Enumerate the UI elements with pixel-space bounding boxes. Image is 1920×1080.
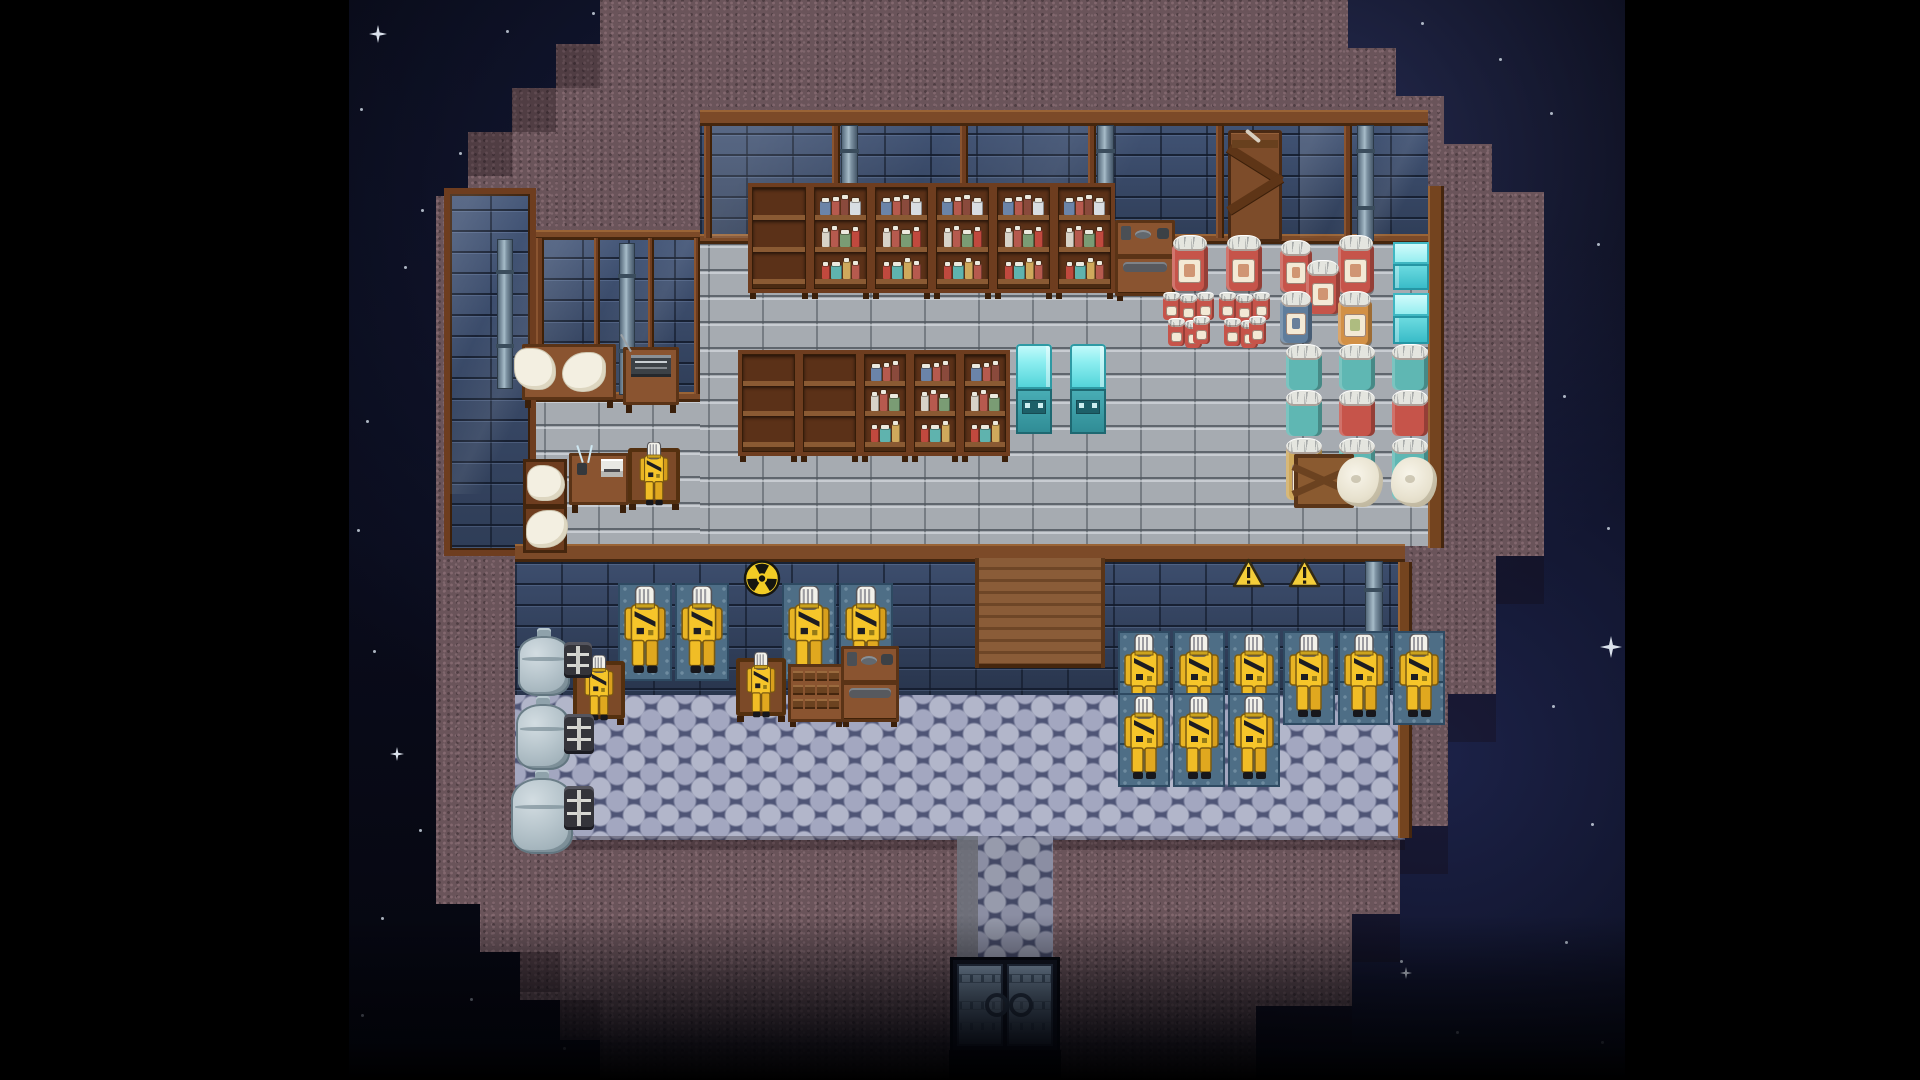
shelf-tier — [998, 220, 1049, 252]
star — [1550, 112, 1553, 115]
shelf-leg — [802, 293, 808, 299]
small-can — [1193, 316, 1210, 344]
item-cap — [981, 390, 987, 394]
table-with-maps[interactable] — [522, 344, 616, 400]
item-cap — [1077, 197, 1083, 201]
shelf-item — [1023, 233, 1034, 247]
label-glyph — [1292, 267, 1301, 278]
kitchen-counter[interactable] — [1115, 220, 1175, 296]
shelf-item — [1003, 201, 1014, 215]
shelf-item — [942, 201, 953, 215]
pipe-bracket — [496, 270, 514, 274]
item-cap — [944, 198, 952, 202]
door-plank-diagonal — [1226, 174, 1283, 214]
can-lid — [1173, 235, 1207, 251]
rock-shadow-tile — [556, 44, 600, 88]
shelf-item — [971, 395, 979, 411]
item-cap — [972, 425, 978, 429]
pipe-bracket — [496, 344, 514, 348]
drawer — [829, 685, 839, 695]
star — [1499, 58, 1502, 61]
pan-tool — [861, 656, 877, 665]
hazmat-suit-rack[interactable] — [1397, 634, 1441, 718]
shelf-tier — [804, 355, 855, 386]
can-lid — [1339, 291, 1371, 307]
cabinet-leg — [836, 722, 842, 727]
can-lid — [1339, 390, 1375, 406]
item-cap — [905, 258, 911, 262]
drawer — [793, 699, 803, 709]
item-cap — [853, 261, 859, 265]
drawer — [805, 685, 815, 695]
hazmat-suit-rack[interactable] — [1342, 634, 1386, 718]
shelf-leg — [924, 293, 930, 299]
jug-ring — [522, 657, 566, 661]
shelf-leg — [952, 456, 958, 462]
shelf-tier — [815, 252, 866, 284]
can-lid — [1286, 438, 1322, 454]
item-cap — [852, 198, 860, 202]
hazmat-suit-stand[interactable] — [628, 448, 680, 510]
shelf-item — [892, 424, 900, 442]
grinder-tool — [1121, 226, 1131, 240]
grinder-tool — [847, 652, 857, 666]
shelf-tier — [965, 416, 1005, 447]
shelf-item — [1024, 198, 1032, 215]
canister-stripe — [576, 646, 580, 674]
shelf-item — [1066, 231, 1074, 247]
hazmat-suit-stand[interactable] — [736, 658, 786, 722]
shelf-item — [971, 428, 979, 442]
can-label — [1286, 313, 1306, 335]
hazmat-suit — [745, 652, 777, 718]
radio-line — [635, 367, 667, 369]
item-cap — [884, 228, 890, 232]
shelf-item — [989, 397, 1000, 411]
shelf-item — [1084, 233, 1095, 247]
pantry-shelf[interactable] — [860, 350, 910, 456]
shelf-tier — [915, 386, 955, 417]
hazmat-suit-rack[interactable] — [679, 586, 725, 674]
shelf-tier — [965, 386, 1005, 417]
can-label — [1344, 259, 1367, 283]
item-cap — [1067, 228, 1073, 232]
large-supply-can[interactable] — [1338, 235, 1374, 293]
large-supply-can-orange[interactable] — [1338, 291, 1372, 345]
shelf-item — [831, 229, 839, 247]
shelf-item — [942, 364, 950, 381]
drawer — [817, 671, 827, 681]
hazmat-suit-rack[interactable] — [1122, 696, 1166, 780]
shelf-item — [974, 264, 982, 279]
shelf-leg — [1046, 293, 1052, 299]
canister[interactable] — [564, 714, 594, 754]
map-cloth — [562, 352, 606, 392]
hazmat-suit-rack[interactable] — [1232, 696, 1276, 780]
kettle-tool — [881, 654, 893, 665]
jug-body — [518, 636, 570, 696]
water-jug[interactable] — [518, 628, 570, 696]
shelf-tier — [998, 252, 1049, 284]
item-cap — [822, 198, 830, 202]
item-cap — [1015, 262, 1023, 266]
star — [357, 529, 360, 532]
window-sheen-west — [450, 194, 530, 494]
label-glyph — [1238, 264, 1248, 276]
shelf-item — [892, 229, 900, 247]
shelf-tier — [998, 188, 1049, 220]
shelf-item — [883, 231, 891, 247]
item-cap — [1086, 195, 1092, 199]
shelf-tier — [753, 220, 805, 252]
lab-desk[interactable] — [569, 453, 629, 505]
small-can — [1168, 318, 1185, 346]
boarded-door[interactable] — [1228, 130, 1282, 242]
shelf-item — [992, 424, 1000, 442]
shelf-item — [1014, 265, 1025, 279]
stacked-can — [1286, 390, 1322, 436]
tool-cabinet[interactable] — [841, 646, 899, 722]
small-can-cluster[interactable] — [1219, 292, 1271, 350]
shelf-item — [841, 198, 849, 215]
cotton-bale[interactable] — [1337, 457, 1383, 507]
small-can — [1163, 292, 1180, 320]
rock-shadow-tile — [512, 88, 556, 132]
cabinet-shelf-board — [1118, 254, 1172, 259]
small-can — [1249, 316, 1266, 344]
shelf-item — [871, 367, 882, 381]
item-cap — [940, 394, 948, 398]
label-glyph — [1350, 319, 1360, 331]
can-lid — [1392, 390, 1428, 406]
item-cap — [990, 394, 998, 398]
stacked-can — [1339, 344, 1375, 390]
shelf-tier — [743, 386, 794, 417]
star — [1597, 243, 1600, 246]
shelf-item — [871, 395, 879, 411]
large-supply-can[interactable] — [1226, 235, 1262, 291]
wall-mullion — [704, 126, 712, 238]
shelf-leg — [985, 293, 991, 299]
pantry-shelf[interactable] — [960, 350, 1010, 456]
item-cap — [1097, 227, 1103, 231]
cotton-bale[interactable] — [1391, 457, 1437, 507]
drawer — [805, 699, 815, 709]
small-can — [1219, 292, 1236, 320]
item-cap — [890, 394, 898, 398]
letterbox-right — [1625, 0, 1920, 1080]
item-cap — [966, 258, 972, 262]
item-cap — [993, 361, 999, 365]
shelf-item — [933, 366, 941, 381]
stacked-can — [1339, 390, 1375, 436]
can-label — [1286, 262, 1306, 284]
shelf-leg — [852, 456, 858, 462]
ice-block[interactable] — [1393, 293, 1429, 343]
shelf-item — [852, 264, 860, 279]
shelf-item — [1075, 265, 1086, 279]
can-label — [1178, 259, 1201, 283]
shelf-tier — [865, 416, 905, 447]
item-cap — [1036, 261, 1042, 265]
shelf-leg — [862, 456, 868, 462]
shelf-item — [1014, 229, 1022, 247]
fluff-detail — [1405, 475, 1415, 483]
shelf-item — [974, 230, 982, 247]
block-side — [1393, 316, 1429, 344]
item-cap — [914, 227, 920, 231]
shelf-item — [911, 201, 922, 215]
item-cap — [1076, 226, 1082, 230]
shelf-item — [983, 366, 991, 381]
star — [1421, 22, 1424, 25]
shelf-tier — [753, 188, 805, 220]
shelf-tier — [743, 416, 794, 447]
shelf-item — [980, 393, 988, 411]
can-lid — [1236, 294, 1253, 303]
can-label — [1227, 332, 1238, 342]
linen-shelf[interactable] — [523, 459, 567, 553]
item-cap — [981, 425, 989, 429]
item-cap — [883, 198, 891, 202]
shelf-tier — [1059, 220, 1110, 252]
shelf-board — [525, 504, 565, 509]
star-sparkle — [369, 25, 387, 43]
shelf-item — [1096, 230, 1104, 247]
pipe-bracket — [618, 274, 636, 278]
shelf-tier — [965, 355, 1005, 386]
cooler-button — [1038, 403, 1043, 408]
hazmat-suit-rack[interactable] — [1177, 696, 1221, 780]
canister[interactable] — [564, 642, 592, 678]
shelf-item — [850, 201, 861, 215]
shelf-item — [822, 231, 830, 247]
item-cap — [1036, 227, 1042, 231]
item-cap — [833, 197, 839, 201]
item-cap — [914, 261, 920, 265]
shelf-tier — [815, 188, 866, 220]
desk-leg — [572, 505, 578, 513]
shelf-tier — [1059, 188, 1110, 220]
large-supply-can-blue[interactable] — [1280, 291, 1312, 343]
shelf-tier — [915, 355, 955, 386]
item-cap — [975, 261, 981, 265]
shelf-tier — [753, 252, 805, 284]
shelf-item — [930, 393, 938, 411]
floor-edge-shadow-left — [515, 836, 978, 850]
stacked-can — [1392, 390, 1428, 436]
item-cap — [1085, 230, 1093, 234]
wing-top-beam — [536, 230, 700, 240]
hazmat-suit-rack[interactable] — [622, 586, 668, 674]
can-lid — [1286, 344, 1322, 360]
item-cap — [884, 363, 890, 367]
drawer — [793, 685, 803, 695]
item-cap — [1024, 230, 1032, 234]
cooler-glass-top — [1016, 344, 1052, 389]
shelf-item — [965, 261, 973, 279]
item-cap — [872, 425, 878, 429]
cooler-glass-top — [1070, 344, 1106, 389]
item-cap — [893, 361, 899, 365]
rolling-door[interactable] — [975, 558, 1105, 668]
can-label — [1312, 283, 1334, 306]
hazmat-suit-rack[interactable] — [786, 586, 832, 674]
pantry-shelf[interactable] — [871, 183, 932, 293]
drawer — [817, 699, 827, 709]
pantry-shelf[interactable] — [810, 183, 871, 293]
shelf-leg — [1002, 456, 1008, 462]
shelf-item — [913, 264, 921, 279]
block-top — [1393, 242, 1429, 264]
can-label — [1200, 306, 1211, 316]
drawer — [817, 685, 827, 695]
shelf-tier — [865, 386, 905, 417]
shelf-item — [972, 201, 983, 215]
pipe-bracket — [1356, 149, 1375, 153]
pantry-shelf[interactable] — [910, 350, 960, 456]
item-cap — [884, 262, 890, 266]
stand-leg — [672, 504, 679, 510]
shelf-item — [1035, 264, 1043, 279]
shelf-item — [883, 265, 891, 279]
star — [506, 30, 509, 33]
hazmat-suit — [638, 442, 670, 506]
item-cap — [1016, 197, 1022, 201]
cooler-button — [1025, 403, 1030, 408]
shelf-item — [1035, 230, 1043, 247]
label-glyph — [1184, 264, 1194, 276]
star — [421, 209, 424, 212]
table-leg — [525, 400, 531, 408]
star — [1563, 395, 1566, 398]
star — [366, 420, 369, 423]
shelf-tier — [876, 252, 927, 284]
wall-mullion — [1344, 126, 1352, 238]
wall-top-trim — [700, 110, 1428, 126]
shelf-leg — [934, 293, 940, 299]
star — [419, 829, 422, 832]
item-cap — [881, 425, 889, 429]
typewriter — [601, 459, 623, 477]
shelf-item — [840, 233, 851, 247]
item-cap — [943, 421, 949, 425]
shelf-tier — [915, 416, 955, 447]
block-side — [1393, 264, 1429, 290]
shelf-item — [822, 265, 830, 279]
shelf-leg — [902, 456, 908, 462]
shelf-tier — [937, 188, 988, 220]
shelf-leg — [812, 293, 818, 299]
shelf-tier — [937, 220, 988, 252]
small-can-cluster[interactable] — [1163, 292, 1215, 350]
shelf-tier — [815, 220, 866, 252]
can-lid — [1193, 316, 1210, 325]
shelf-item — [971, 367, 982, 381]
shelf-tier — [804, 386, 855, 417]
water-jug[interactable] — [516, 696, 570, 770]
pantry-shelf-empty[interactable] — [738, 350, 799, 456]
warning-sign — [1232, 558, 1265, 589]
shelf-item — [880, 393, 888, 411]
star-sparkle — [390, 746, 404, 760]
item-cap — [972, 364, 980, 368]
door-plank-top — [1232, 140, 1278, 148]
wall-mullion — [1216, 126, 1224, 238]
shelf-leg — [750, 293, 756, 299]
item-cap — [1027, 258, 1033, 262]
pan-tool — [1135, 230, 1151, 239]
item-cap — [894, 197, 900, 201]
hazmat-suit-rack[interactable] — [1287, 634, 1331, 718]
item-cap — [1015, 226, 1021, 230]
star — [373, 650, 376, 653]
letterbox-left — [0, 0, 349, 1080]
item-cap — [945, 262, 951, 266]
shelf-item — [921, 367, 932, 381]
shelf-leg — [912, 456, 918, 462]
shelf-leg — [873, 293, 879, 299]
shelf-item — [831, 265, 842, 279]
item-cap — [893, 421, 899, 425]
cabinet-shelf-board — [844, 680, 896, 685]
shelf-item — [953, 265, 964, 279]
item-cap — [832, 226, 838, 230]
shelf-item — [1015, 200, 1023, 215]
canister-stripe — [577, 718, 581, 750]
water-cooler[interactable] — [1016, 344, 1052, 434]
can-label — [1232, 259, 1255, 283]
item-cap — [954, 226, 960, 230]
item-cap — [934, 363, 940, 367]
cooler-button — [1092, 403, 1097, 408]
can-label — [1344, 314, 1366, 337]
pantry-shelf[interactable] — [993, 183, 1054, 293]
item-cap — [842, 195, 848, 199]
shelf-item — [992, 364, 1000, 381]
map-cloth — [514, 348, 556, 390]
star — [360, 108, 363, 111]
item-cap — [1005, 198, 1013, 202]
can-lid — [1392, 438, 1428, 454]
shelf-item — [883, 366, 891, 381]
shelf-item — [921, 395, 929, 411]
shelf-item — [1075, 229, 1083, 247]
pipe-bracket — [1364, 588, 1384, 592]
item-cap — [945, 228, 951, 232]
can-lid — [1168, 318, 1185, 327]
ice-block[interactable] — [1393, 242, 1429, 290]
pantry-shelf-empty[interactable] — [748, 183, 810, 293]
large-supply-can[interactable] — [1172, 235, 1208, 291]
radio-desk[interactable] — [623, 347, 679, 405]
item-cap — [993, 421, 999, 425]
canister[interactable] — [564, 786, 594, 830]
drawer-cabinet[interactable] — [788, 664, 844, 722]
desk-leg — [620, 505, 626, 513]
pantry-shelf[interactable] — [932, 183, 993, 293]
star — [1607, 527, 1610, 530]
water-cooler[interactable] — [1070, 344, 1106, 434]
can-lid — [1224, 318, 1241, 327]
can-lid — [1253, 292, 1270, 301]
item-cap — [913, 198, 921, 202]
wall-pipe — [1358, 126, 1373, 240]
can-lid — [1281, 240, 1311, 256]
cabinet-leg — [1117, 296, 1123, 301]
pantry-shelf[interactable] — [1054, 183, 1115, 293]
pantry-shelf-empty[interactable] — [799, 350, 860, 456]
